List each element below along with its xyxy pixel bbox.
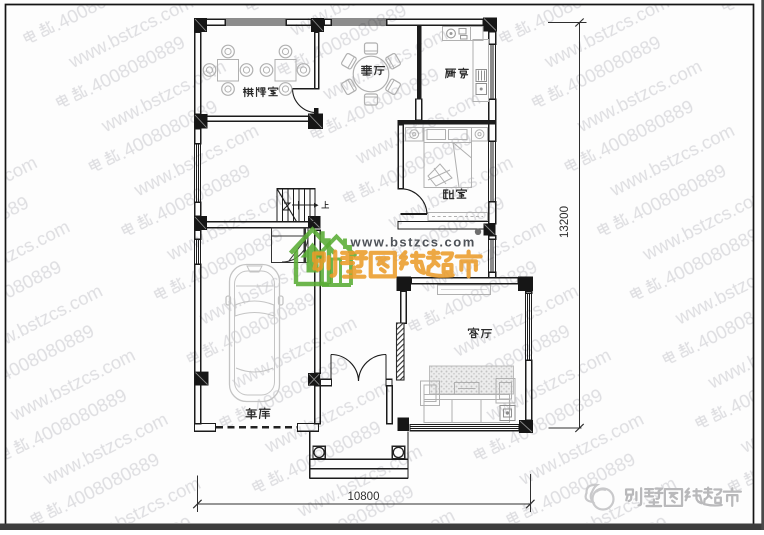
svg-text:10800: 10800 xyxy=(348,491,380,503)
svg-text:www.bstzcs.com: www.bstzcs.com xyxy=(350,235,476,250)
svg-text:13200: 13200 xyxy=(559,206,571,238)
